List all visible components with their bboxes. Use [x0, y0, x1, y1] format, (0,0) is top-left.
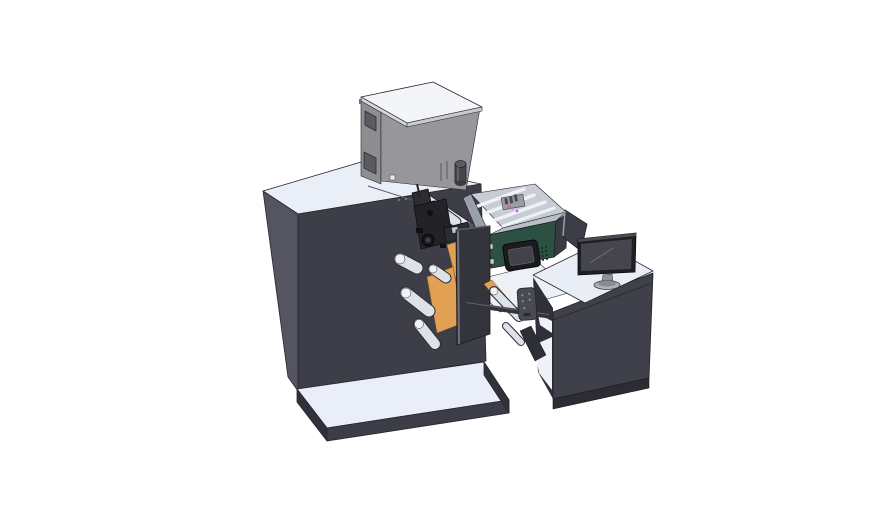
- panel-vent-dot: [545, 250, 547, 252]
- panel-bolt-tab: [490, 259, 494, 264]
- roller-a-end: [395, 254, 405, 264]
- box-corner-square: [390, 175, 395, 180]
- shelf-roller-end: [490, 287, 498, 295]
- pendant-slot: [524, 313, 531, 316]
- pendant-group: [517, 287, 537, 320]
- cylinder-base: [455, 180, 466, 186]
- print-head-hub-inner: [425, 237, 431, 243]
- machine-left-face: [263, 191, 298, 391]
- monitor-screen: [581, 239, 632, 271]
- panel-vent-dot: [546, 258, 548, 260]
- panel-vent-dot: [541, 251, 543, 253]
- screw-dot: [398, 199, 400, 201]
- roller-c-end: [401, 288, 411, 298]
- control-display-group: [502, 239, 541, 271]
- print-head-block: [416, 228, 423, 233]
- panel-vent-dot: [541, 247, 543, 249]
- box-hinge-tab: [359, 99, 362, 104]
- door-panel-edge-highlight: [458, 231, 459, 344]
- print-head-block: [440, 244, 446, 248]
- panel-vent-dot: [546, 254, 548, 256]
- print-head-gear: [427, 210, 433, 216]
- cylinder-top: [455, 161, 466, 168]
- panel-vent-dot: [545, 246, 547, 248]
- door-panel: [456, 226, 490, 345]
- control-display-screen: [508, 246, 534, 266]
- panel-vent-dot: [542, 259, 544, 261]
- screw-dot: [405, 198, 407, 200]
- machine-scene-svg: [0, 0, 888, 522]
- roller-d-end: [415, 320, 424, 329]
- panel-vent-dot: [542, 255, 544, 257]
- tray-purple-part: [516, 210, 519, 213]
- monitor-stand-base-inner: [598, 281, 616, 287]
- roller-b-end: [429, 265, 437, 273]
- cad-render-viewport: [0, 0, 888, 522]
